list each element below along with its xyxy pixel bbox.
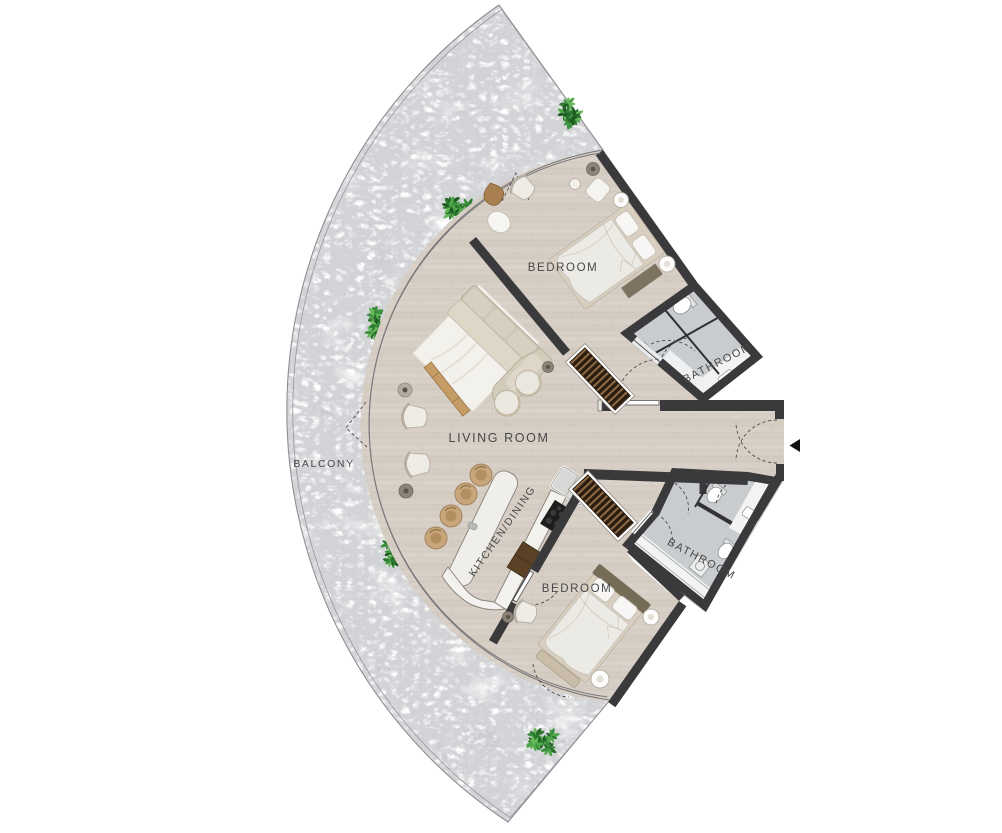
svg-text:BEDROOM: BEDROOM [542, 583, 613, 595]
svg-text:BALCONY: BALCONY [293, 458, 354, 470]
svg-text:BEDROOM: BEDROOM [528, 262, 599, 274]
svg-text:LIVING ROOM: LIVING ROOM [449, 431, 550, 445]
